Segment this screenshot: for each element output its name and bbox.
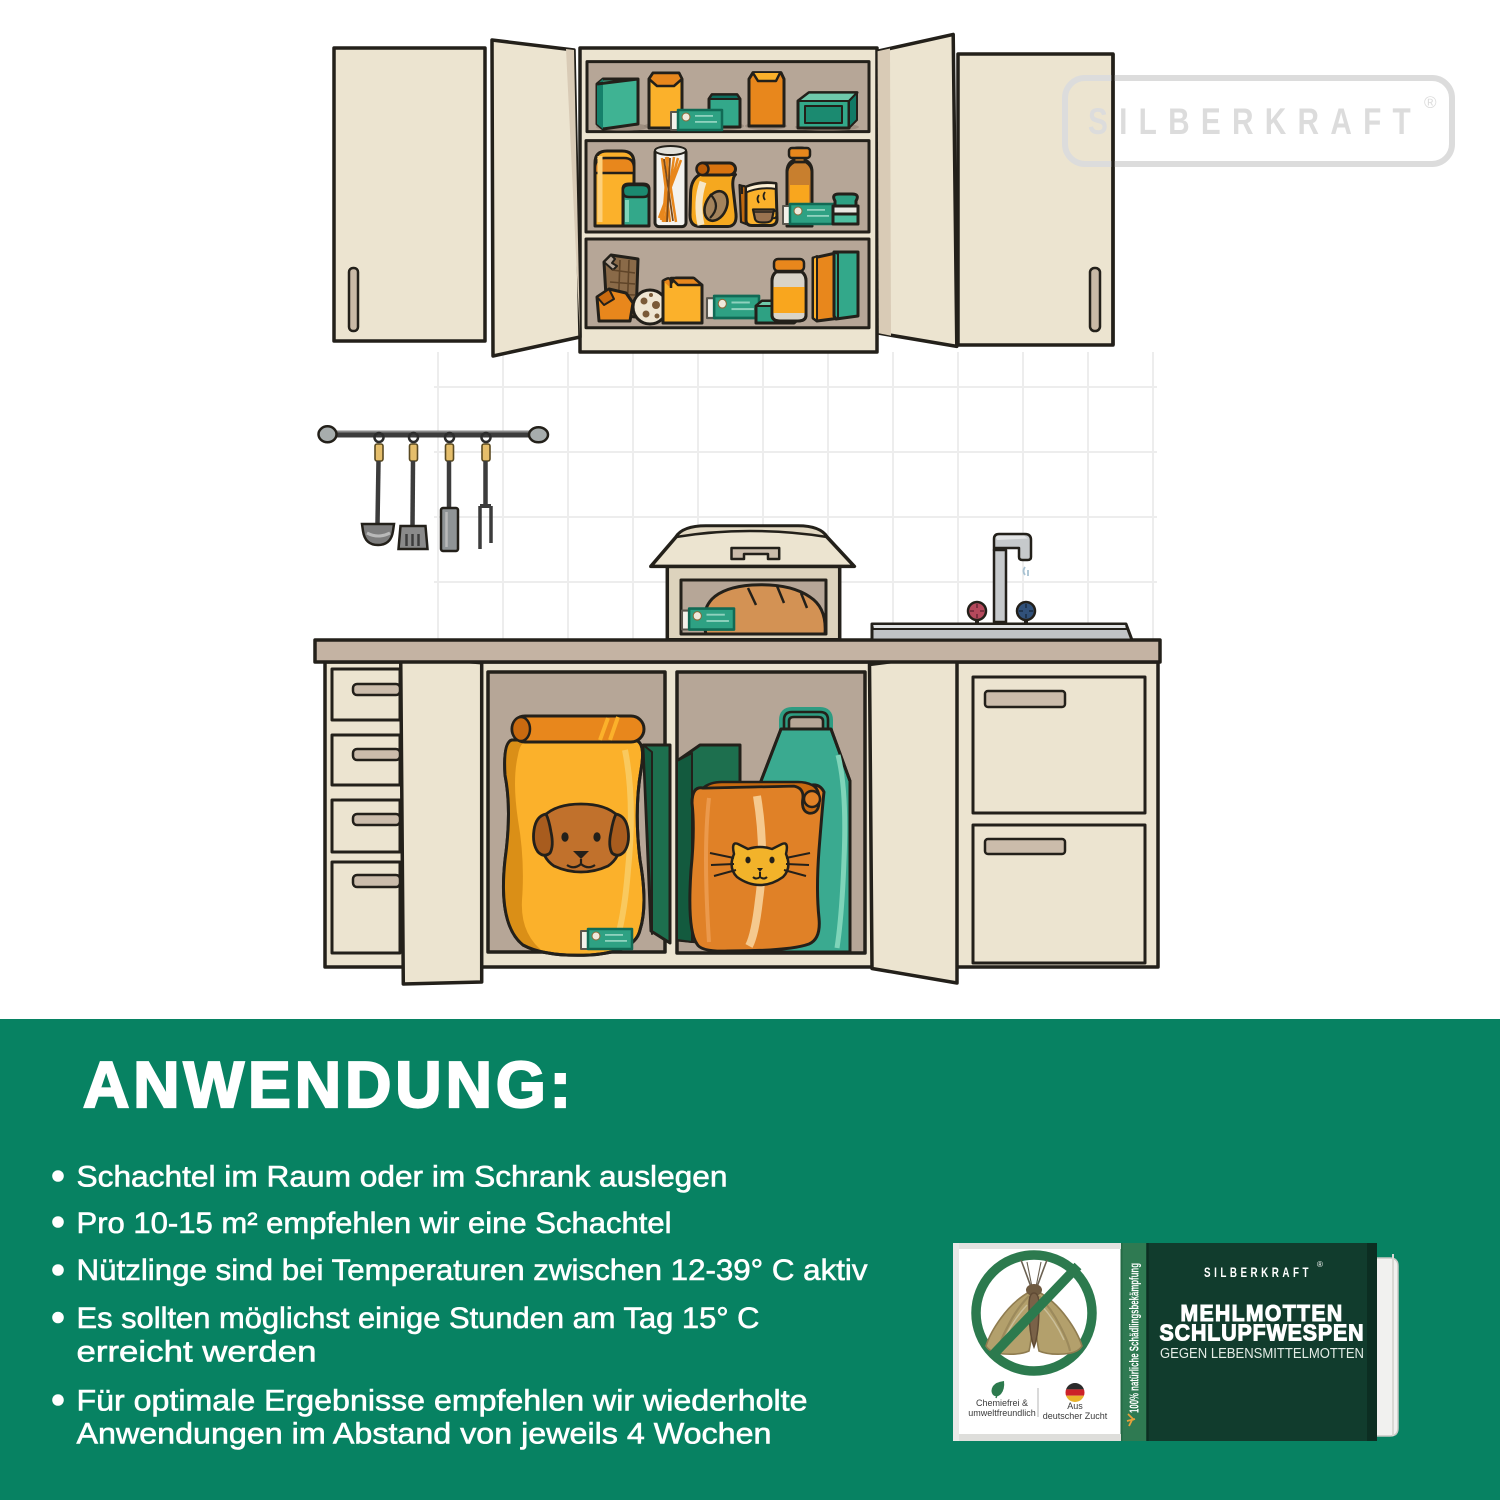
svg-text:SILBERKRAFT: SILBERKRAFT <box>1204 1264 1312 1280</box>
svg-text:Aus: Aus <box>1067 1401 1083 1411</box>
svg-text:Chemiefrei &: Chemiefrei & <box>976 1398 1028 1408</box>
svg-text:umweltfreundlich: umweltfreundlich <box>968 1408 1036 1418</box>
svg-text:Für optimale Ergebnisse empfeh: Für optimale Ergebnisse empfehlen wir wi… <box>77 1385 808 1418</box>
svg-text:erreicht werden: erreicht werden <box>77 1336 317 1369</box>
svg-text:SCHLUPFWESPEN: SCHLUPFWESPEN <box>1160 1320 1365 1346</box>
svg-text:Anwendungen im Abstand von jew: Anwendungen im Abstand von jeweils 4 Woc… <box>77 1418 772 1451</box>
svg-text:deutscher Zucht: deutscher Zucht <box>1043 1411 1108 1421</box>
svg-text:Es sollten möglichst einige St: Es sollten möglichst einige Stunden am T… <box>77 1302 760 1335</box>
svg-text:®: ® <box>1317 1260 1323 1269</box>
svg-text:Nützlinge sind bei Temperature: Nützlinge sind bei Temperaturen zwischen… <box>77 1254 868 1287</box>
svg-text:100% natürliche Schädlingsbekä: 100% natürliche Schädlingsbekämpfung <box>1128 1263 1142 1413</box>
svg-text:GEGEN LEBENSMITTELMOTTEN: GEGEN LEBENSMITTELMOTTEN <box>1160 1345 1364 1362</box>
svg-text:Schachtel im Raum oder im Schr: Schachtel im Raum oder im Schrank ausleg… <box>77 1161 728 1194</box>
svg-text:®: ® <box>1424 93 1437 112</box>
svg-text:SILBERKRAFT: SILBERKRAFT <box>1088 101 1422 142</box>
svg-text:ANWENDUNG:: ANWENDUNG: <box>83 1048 575 1121</box>
svg-text:Pro 10-15 m² empfehlen wir ein: Pro 10-15 m² empfehlen wir eine Schachte… <box>77 1207 672 1240</box>
